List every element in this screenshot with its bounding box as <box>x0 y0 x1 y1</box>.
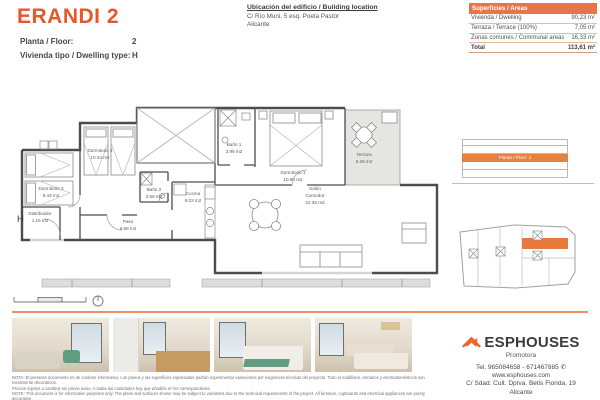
floor-row: Planta / Floor:2 <box>20 37 138 46</box>
north-indicator <box>93 296 103 306</box>
house-icon <box>462 335 481 351</box>
disclaimer-line: NOTE: This document is for information p… <box>12 391 436 400</box>
living-room-furniture <box>249 199 426 267</box>
photo-window <box>319 323 344 355</box>
room-area: 6.68 m2 <box>120 226 137 231</box>
area-label: Zonas comunes / Communal areas <box>471 35 564 41</box>
room-area: 6.26 m2 <box>356 159 373 164</box>
room-label: Baño 1 <box>227 142 242 147</box>
room-area: 3.58 m2 <box>146 194 163 199</box>
floor-value: 2 <box>132 37 136 46</box>
area-value: 90,23 m² <box>571 15 595 21</box>
disclaimer: NOTA: El presente documento es de caráct… <box>12 375 436 400</box>
room-area: 1.16 m2 <box>32 218 49 223</box>
shaft-boxes <box>40 141 57 149</box>
location-street: C/ Río Muni, 5 esq. Poeta Pastor <box>247 13 378 21</box>
whatsapp-icon: ✆ <box>561 364 566 371</box>
area-value: 7,05 m² <box>575 25 595 31</box>
room-label: Dormitorio 1 <box>280 170 305 175</box>
address-city: Alicante <box>448 389 594 397</box>
photo-wall-art <box>381 322 400 330</box>
section-divider <box>12 311 588 313</box>
room-area: 8.02 m2 <box>185 198 202 203</box>
disclaimer-line: NOTA: El presente documento es de caráct… <box>12 375 436 386</box>
building-elevation: Planta / Floor: 2 <box>462 139 568 178</box>
dwelling-type-label: Vivienda tipo / Dwelling type: <box>20 51 132 60</box>
table-row: Terraza / Terrace (100%) 7,05 m² <box>469 24 597 34</box>
room-label: Distribuidor <box>28 211 52 216</box>
dwelling-type-row: Vivienda tipo / Dwelling type:H <box>20 51 138 60</box>
photo-window <box>219 322 246 357</box>
room-label: Terraza <box>356 152 372 157</box>
dwelling-type-value: H <box>132 51 138 60</box>
elevation-band-highlight: Planta / Floor: 2 <box>462 154 568 162</box>
room-label: Cocina <box>186 191 201 196</box>
elevation-band <box>462 139 568 146</box>
photo-green-throw <box>243 359 289 367</box>
elevation-band <box>462 146 568 154</box>
area-label: Terraza / Terrace (100%) <box>471 25 537 31</box>
room-label: Baño 2 <box>147 187 162 192</box>
table-total-row: Total 113,61 m² <box>469 43 597 53</box>
room-area: 3.98 m2 <box>226 149 243 154</box>
location-title: Ubicación del edificio / Building locati… <box>247 4 378 12</box>
facade-strips <box>42 279 430 287</box>
room-area: 9.43 m2 <box>43 193 60 198</box>
location-city: Alicante <box>247 21 378 29</box>
kitchen-photo <box>113 318 210 372</box>
website: www.esphouses.com <box>448 372 594 380</box>
room-label: Dormitorio 3 <box>38 186 63 191</box>
photo-window <box>143 322 166 354</box>
photo-sofa <box>15 353 60 369</box>
developer-block: ESPHOUSES Promotora Tel. 965084658 - 671… <box>448 334 594 397</box>
room-label: Comedor <box>306 193 325 198</box>
ground-line <box>452 183 594 184</box>
room-label: Dormitorio 2 <box>87 148 112 153</box>
contact-info: Tel. 965084658 - 671467885 ✆ www.esphous… <box>448 364 594 397</box>
total-value: 113,61 m² <box>568 45 595 51</box>
areas-table-header: Superficies / Areas <box>469 3 597 14</box>
elevation-band <box>462 170 568 178</box>
room-area: 10.90 m2 <box>283 177 303 182</box>
unit-specs: Planta / Floor:2 Vivienda tipo / Dwellin… <box>20 37 138 65</box>
bedroom2-photo <box>315 318 412 372</box>
brochure-page: ERANDI 2 Planta / Floor:2 Vivienda tipo … <box>0 0 600 400</box>
floor-label: Planta / Floor: <box>20 37 132 46</box>
living-room-photo <box>12 318 109 372</box>
brand-subtitle: Promotora <box>448 352 594 359</box>
room-area: 10.34 m2 <box>90 155 110 160</box>
bedroom1-photo <box>214 318 311 372</box>
page-title: ERANDI 2 <box>17 5 119 29</box>
brand-logo: ESPHOUSES <box>448 334 594 351</box>
area-value: 16,33 m² <box>571 35 595 41</box>
room-label: Salón <box>309 186 321 191</box>
site-plan <box>456 222 581 304</box>
highlighted-unit <box>522 238 568 249</box>
elevation-band <box>462 162 568 170</box>
phone-numbers: Tel. 965084658 - 671467885 <box>476 364 559 371</box>
table-row: Zonas comunes / Communal areas 16,33 m² <box>469 34 597 44</box>
table-row: Vivienda / Dwelling 90,23 m² <box>469 14 597 24</box>
phone-line: Tel. 965084658 - 671467885 ✆ <box>448 364 594 372</box>
unit-letter: H <box>17 214 24 225</box>
room-area: 22.36 m2 <box>305 200 325 205</box>
areas-table: Superficies / Areas Vivienda / Dwelling … <box>469 3 597 53</box>
building-location: Ubicación del edificio / Building locati… <box>247 4 378 29</box>
address-line: C/ Sdad. Cult. Dptva. Betis Florida, 19 <box>448 380 594 388</box>
bedroom1-furniture <box>259 111 333 166</box>
photo-green-chair <box>63 350 79 363</box>
photo-counter <box>156 351 210 372</box>
area-label: Vivienda / Dwelling <box>471 15 522 21</box>
stairwell-core <box>137 108 215 163</box>
floor-plan-drawing: H Dormitorio 3 9.43 m2 Distribuidor 1.16… <box>12 95 440 300</box>
total-label: Total <box>471 45 485 51</box>
scale-bar <box>12 292 112 310</box>
photo-bed <box>354 353 408 369</box>
room-label: Paso <box>123 219 134 224</box>
photo-cabinets <box>113 318 139 372</box>
brand-name: ESPHOUSES <box>484 334 579 351</box>
